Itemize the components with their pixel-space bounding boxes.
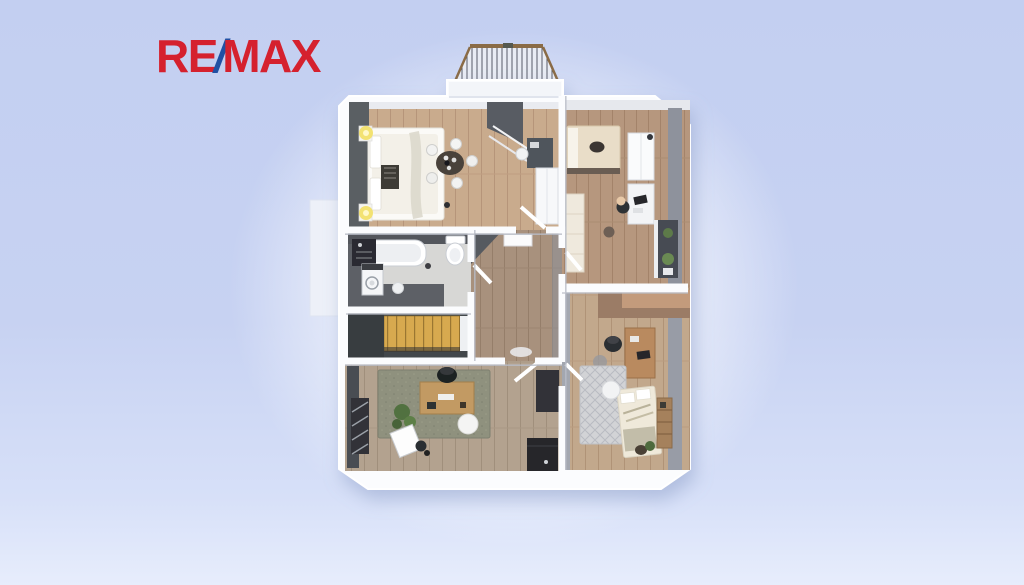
office-chair xyxy=(437,367,457,383)
washing-machine xyxy=(362,264,383,295)
bathroom xyxy=(348,232,471,310)
balcony-floor xyxy=(449,82,561,98)
second-bedroom xyxy=(562,288,690,470)
side-terrace xyxy=(310,200,342,316)
office-desk xyxy=(420,382,474,414)
radiator xyxy=(351,398,369,454)
toilet xyxy=(446,236,465,265)
hallway xyxy=(471,230,562,361)
home-office xyxy=(345,361,562,471)
kids-bedroom xyxy=(562,100,690,288)
bath-stool xyxy=(393,283,404,294)
bookshelf xyxy=(657,398,672,448)
office-cabinet-bottom xyxy=(527,438,558,471)
staircase xyxy=(348,312,471,361)
bathtub xyxy=(352,239,426,266)
kids-shelf-plants xyxy=(654,220,678,278)
master-bedroom xyxy=(349,102,562,230)
nightstand-lamp-top xyxy=(359,126,373,141)
floor-plan-svg xyxy=(0,0,1024,585)
kids-bed xyxy=(567,126,620,174)
bedroom2-ottoman xyxy=(602,381,620,399)
page-background: RE/MAX xyxy=(0,0,1024,585)
office-pouf xyxy=(458,414,478,434)
hall-shelf xyxy=(504,234,532,246)
nightstand-lamp-bottom xyxy=(359,204,373,221)
floor-plan-image xyxy=(0,0,1024,585)
office-cabinet-right xyxy=(536,370,559,412)
